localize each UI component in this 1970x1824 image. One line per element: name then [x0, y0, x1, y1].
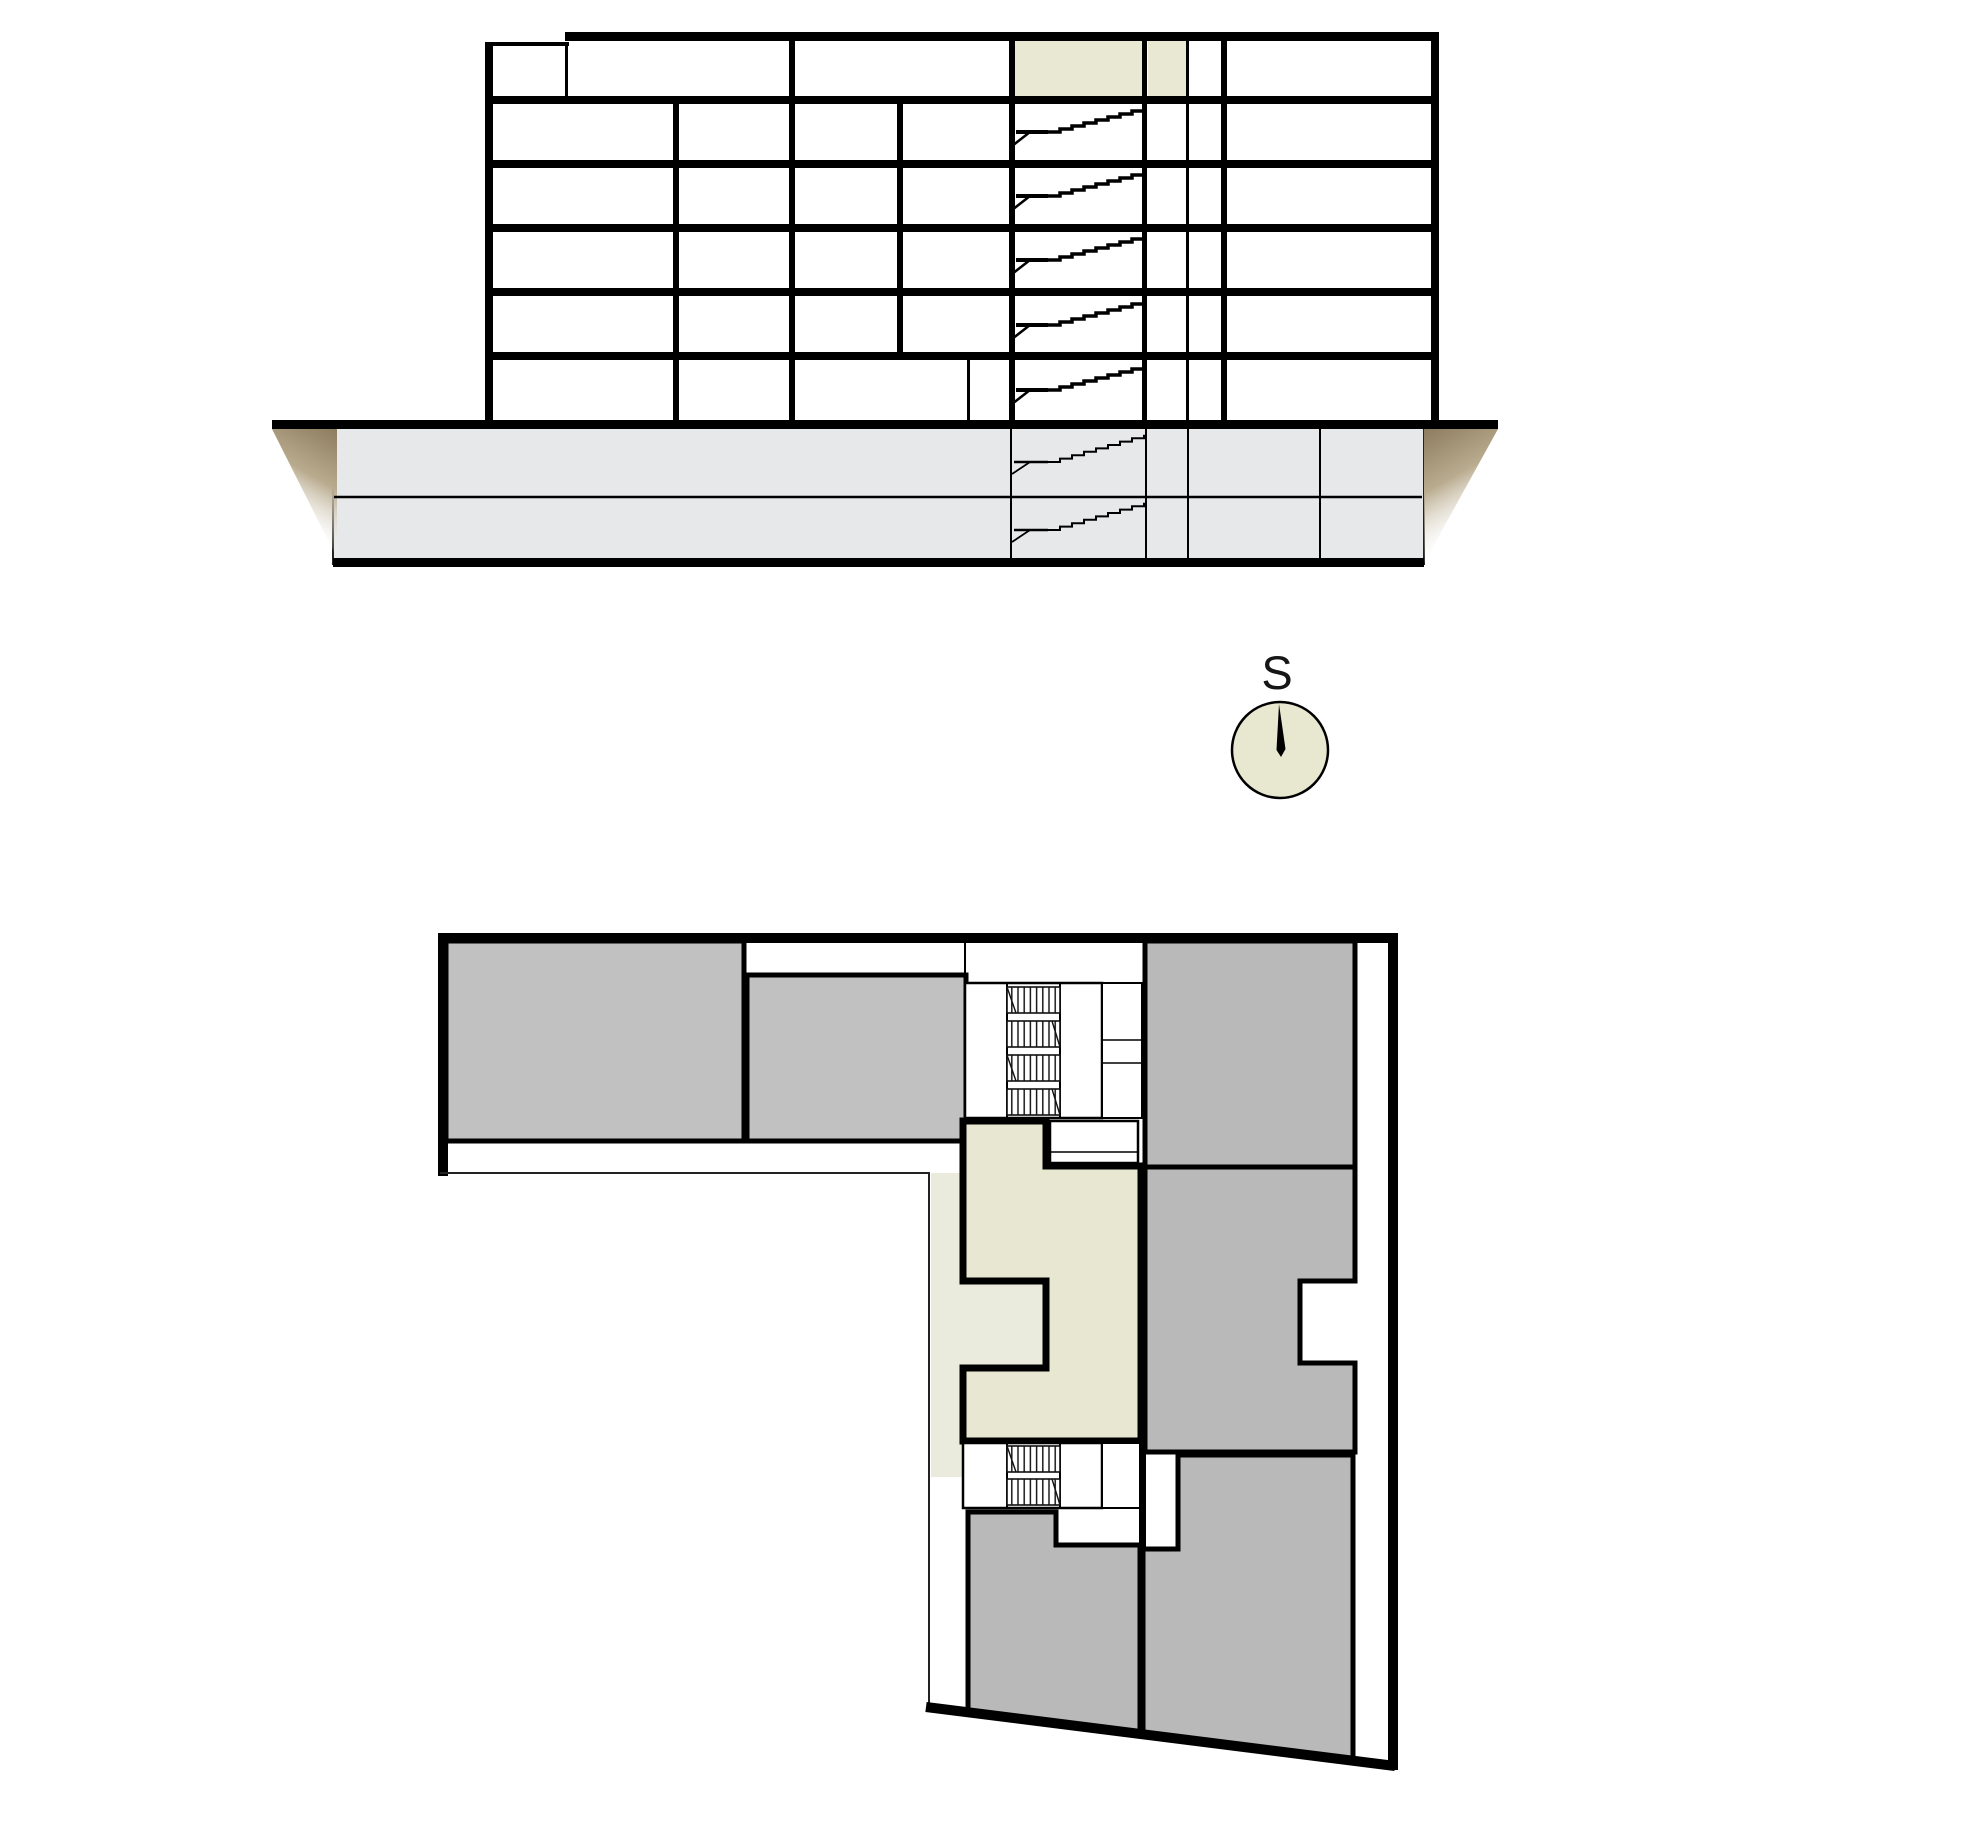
floor-slab [488, 160, 1438, 168]
stair-steps [1048, 301, 1144, 325]
floor-slab [488, 224, 1438, 232]
compass: S [1232, 646, 1328, 798]
plan-outer-wall-west [438, 933, 448, 1176]
room-gray-southeast [1143, 1455, 1353, 1760]
stair-flight-hatch [1007, 1479, 1060, 1505]
lobby-room [1050, 1121, 1138, 1163]
basement-box [333, 424, 1424, 564]
basement-bottom-slab [333, 558, 1424, 567]
building-section [272, 32, 1498, 567]
earth-cut-right [1424, 429, 1498, 563]
room-gray-southwest [968, 1512, 1140, 1733]
stair-shaft-wall-right [1142, 32, 1147, 424]
partition [897, 100, 903, 357]
stairwell-upper [965, 983, 1142, 1118]
room-gray-northwest [446, 941, 744, 1141]
stair-shaft-wall-left [1009, 32, 1015, 424]
unit-underlay-notch [963, 1281, 1046, 1368]
shaft-partition-thin [1186, 32, 1189, 424]
stairwell-lower [963, 1443, 1142, 1508]
shaft-partition [1221, 32, 1227, 424]
stair-steps [1048, 236, 1144, 260]
stair-steps [1048, 172, 1144, 196]
unit-underlay-strip [931, 1173, 963, 1477]
attic-partition [565, 42, 568, 100]
ground-floor-partition [967, 357, 970, 424]
stair-flight-hatch [1007, 1021, 1060, 1047]
roof-slab [565, 32, 1439, 41]
highlighted-attic-cell-small [1148, 38, 1186, 96]
stair-steps [1048, 366, 1144, 390]
partition [789, 32, 795, 424]
section-right-wall [1431, 32, 1439, 424]
ground-line [272, 420, 1498, 429]
earth-cut-left [272, 429, 337, 558]
spine-wall [1139, 1166, 1146, 1548]
section-left-wall [485, 42, 493, 424]
attic-setback-roof-line [485, 42, 569, 46]
room-gray-northeast [1145, 941, 1355, 1167]
plan-outer-wall-north [438, 933, 1397, 943]
stair-steps [1048, 108, 1144, 132]
partition [673, 100, 679, 424]
floor-slab [488, 96, 1438, 104]
room-gray-north-middle [747, 975, 966, 1141]
stair-flight-hatch [1007, 1089, 1060, 1115]
room-gray-east-notched [1145, 1167, 1355, 1452]
compass-label: S [1261, 646, 1292, 699]
plan-outer-wall-east [1388, 933, 1398, 1770]
shaft-side-room [1102, 1443, 1142, 1508]
floor-plan [438, 933, 1398, 1770]
floor-slab [488, 288, 1438, 296]
highlighted-attic-cell-large [1015, 38, 1142, 96]
shaft-side-rooms [1102, 983, 1142, 1118]
floor-slab [488, 352, 1438, 360]
drawing-canvas: S [0, 0, 1970, 1824]
highlighted-apartment [963, 1121, 1141, 1441]
architectural-drawing: S [0, 0, 1970, 1824]
